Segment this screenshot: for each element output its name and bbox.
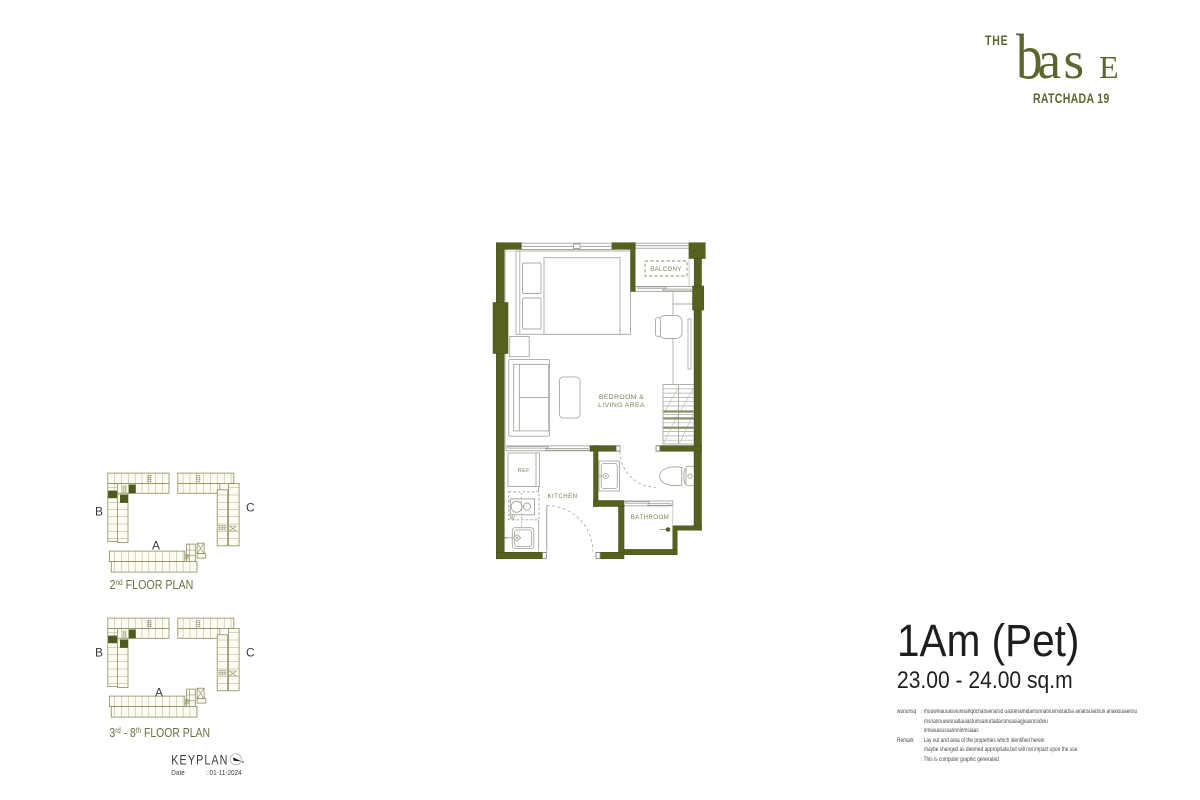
svg-text:A: A [155, 686, 163, 700]
svg-text:BEDROOM &: BEDROOM & [599, 394, 644, 401]
svg-text:C: C [246, 501, 255, 515]
svg-text:: 01-11-2024: : 01-11-2024 [206, 770, 242, 778]
svg-text:W: W [510, 515, 516, 521]
svg-text:Date: Date [171, 770, 185, 778]
svg-text:A: A [152, 539, 160, 553]
svg-text:KEYPLAN: KEYPLAN [171, 752, 228, 768]
svg-text:BATHROOM: BATHROOM [631, 514, 670, 521]
svg-text:BALCONY: BALCONY [650, 267, 681, 273]
svg-text:LIVING AREA: LIVING AREA [598, 402, 645, 409]
svg-text:B: B [95, 504, 103, 518]
svg-text:3rd - 8th FLOOR PLAN: 3rd - 8th FLOOR PLAN [109, 725, 210, 741]
svg-text:2nd FLOOR PLAN: 2nd FLOOR PLAN [110, 577, 194, 592]
svg-text:C: C [246, 646, 255, 660]
svg-text:KITCHEN: KITCHEN [548, 493, 578, 500]
svg-text:REF: REF [518, 468, 530, 474]
svg-text:B: B [95, 646, 103, 660]
